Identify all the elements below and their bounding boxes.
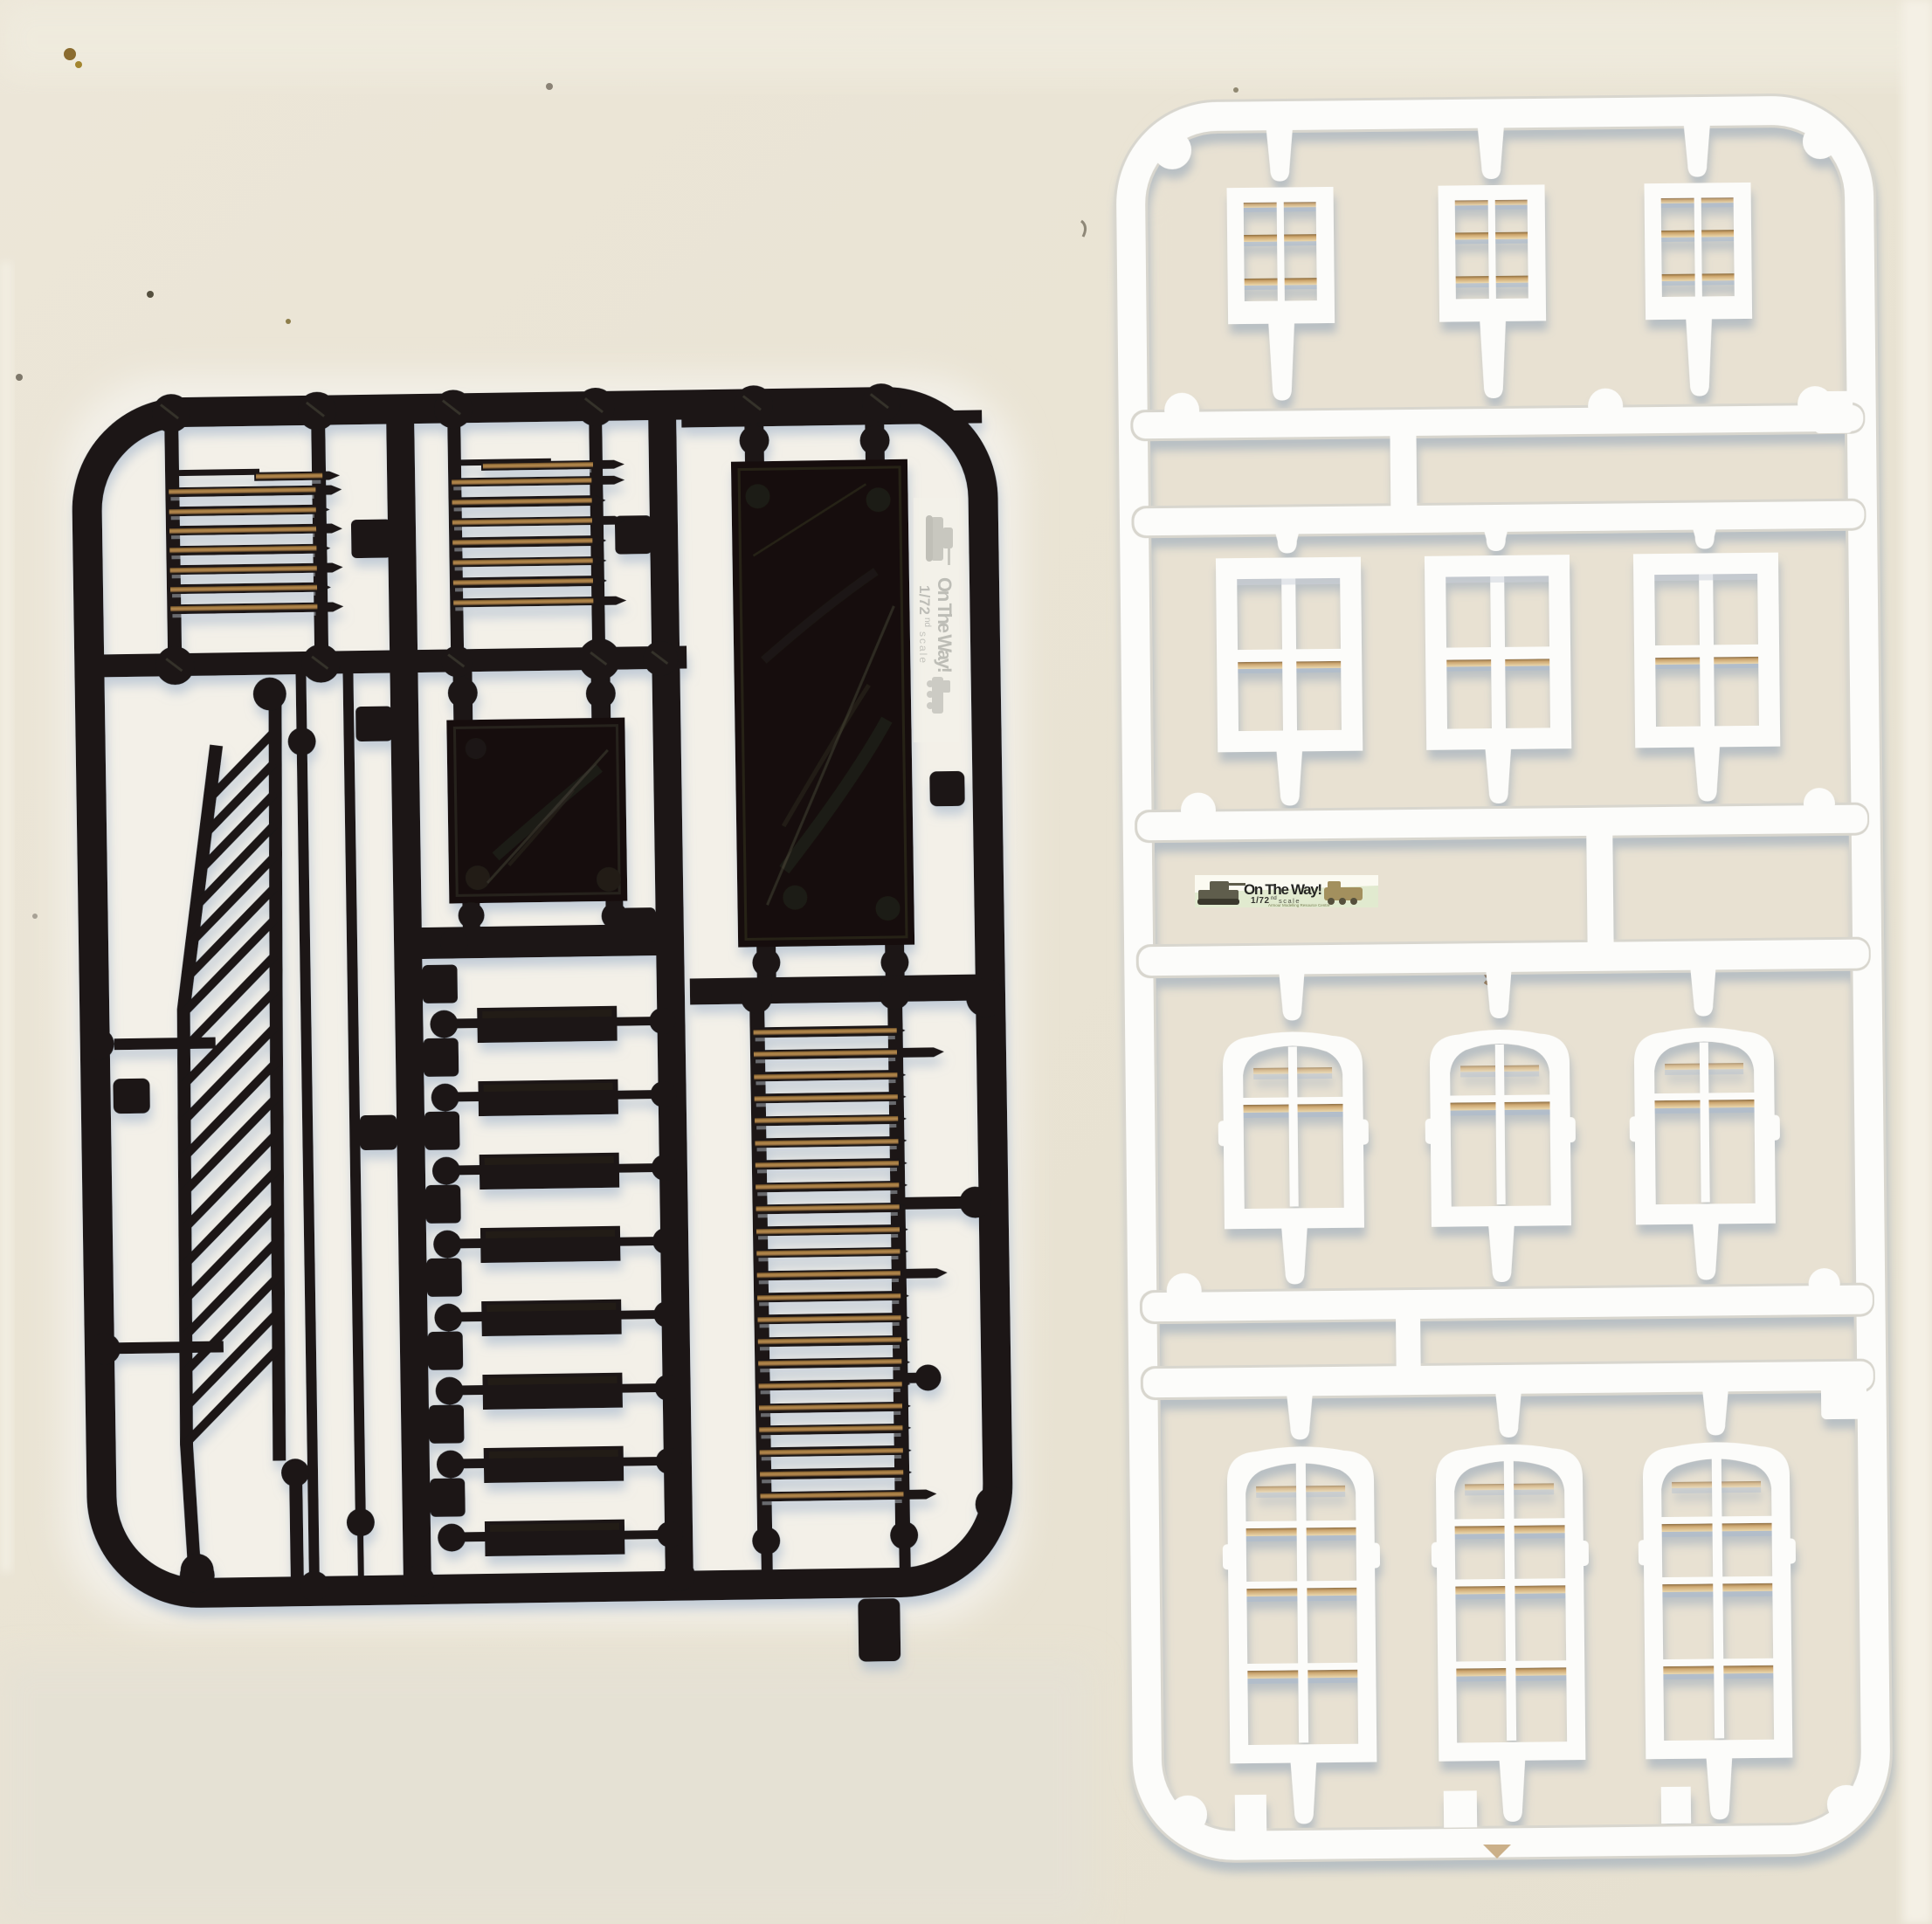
svg-text:scale: scale	[917, 631, 929, 665]
svg-text:nd: nd	[922, 617, 932, 627]
svg-text:Armour Modelling Resource Cent: Armour Modelling Resource Centre	[1268, 903, 1330, 907]
svg-text:nd: nd	[1271, 896, 1277, 901]
svg-text:1/72: 1/72	[1251, 896, 1269, 906]
svg-text:On The Way!: On The Way!	[934, 577, 956, 673]
svg-text:1/72: 1/72	[916, 585, 933, 615]
